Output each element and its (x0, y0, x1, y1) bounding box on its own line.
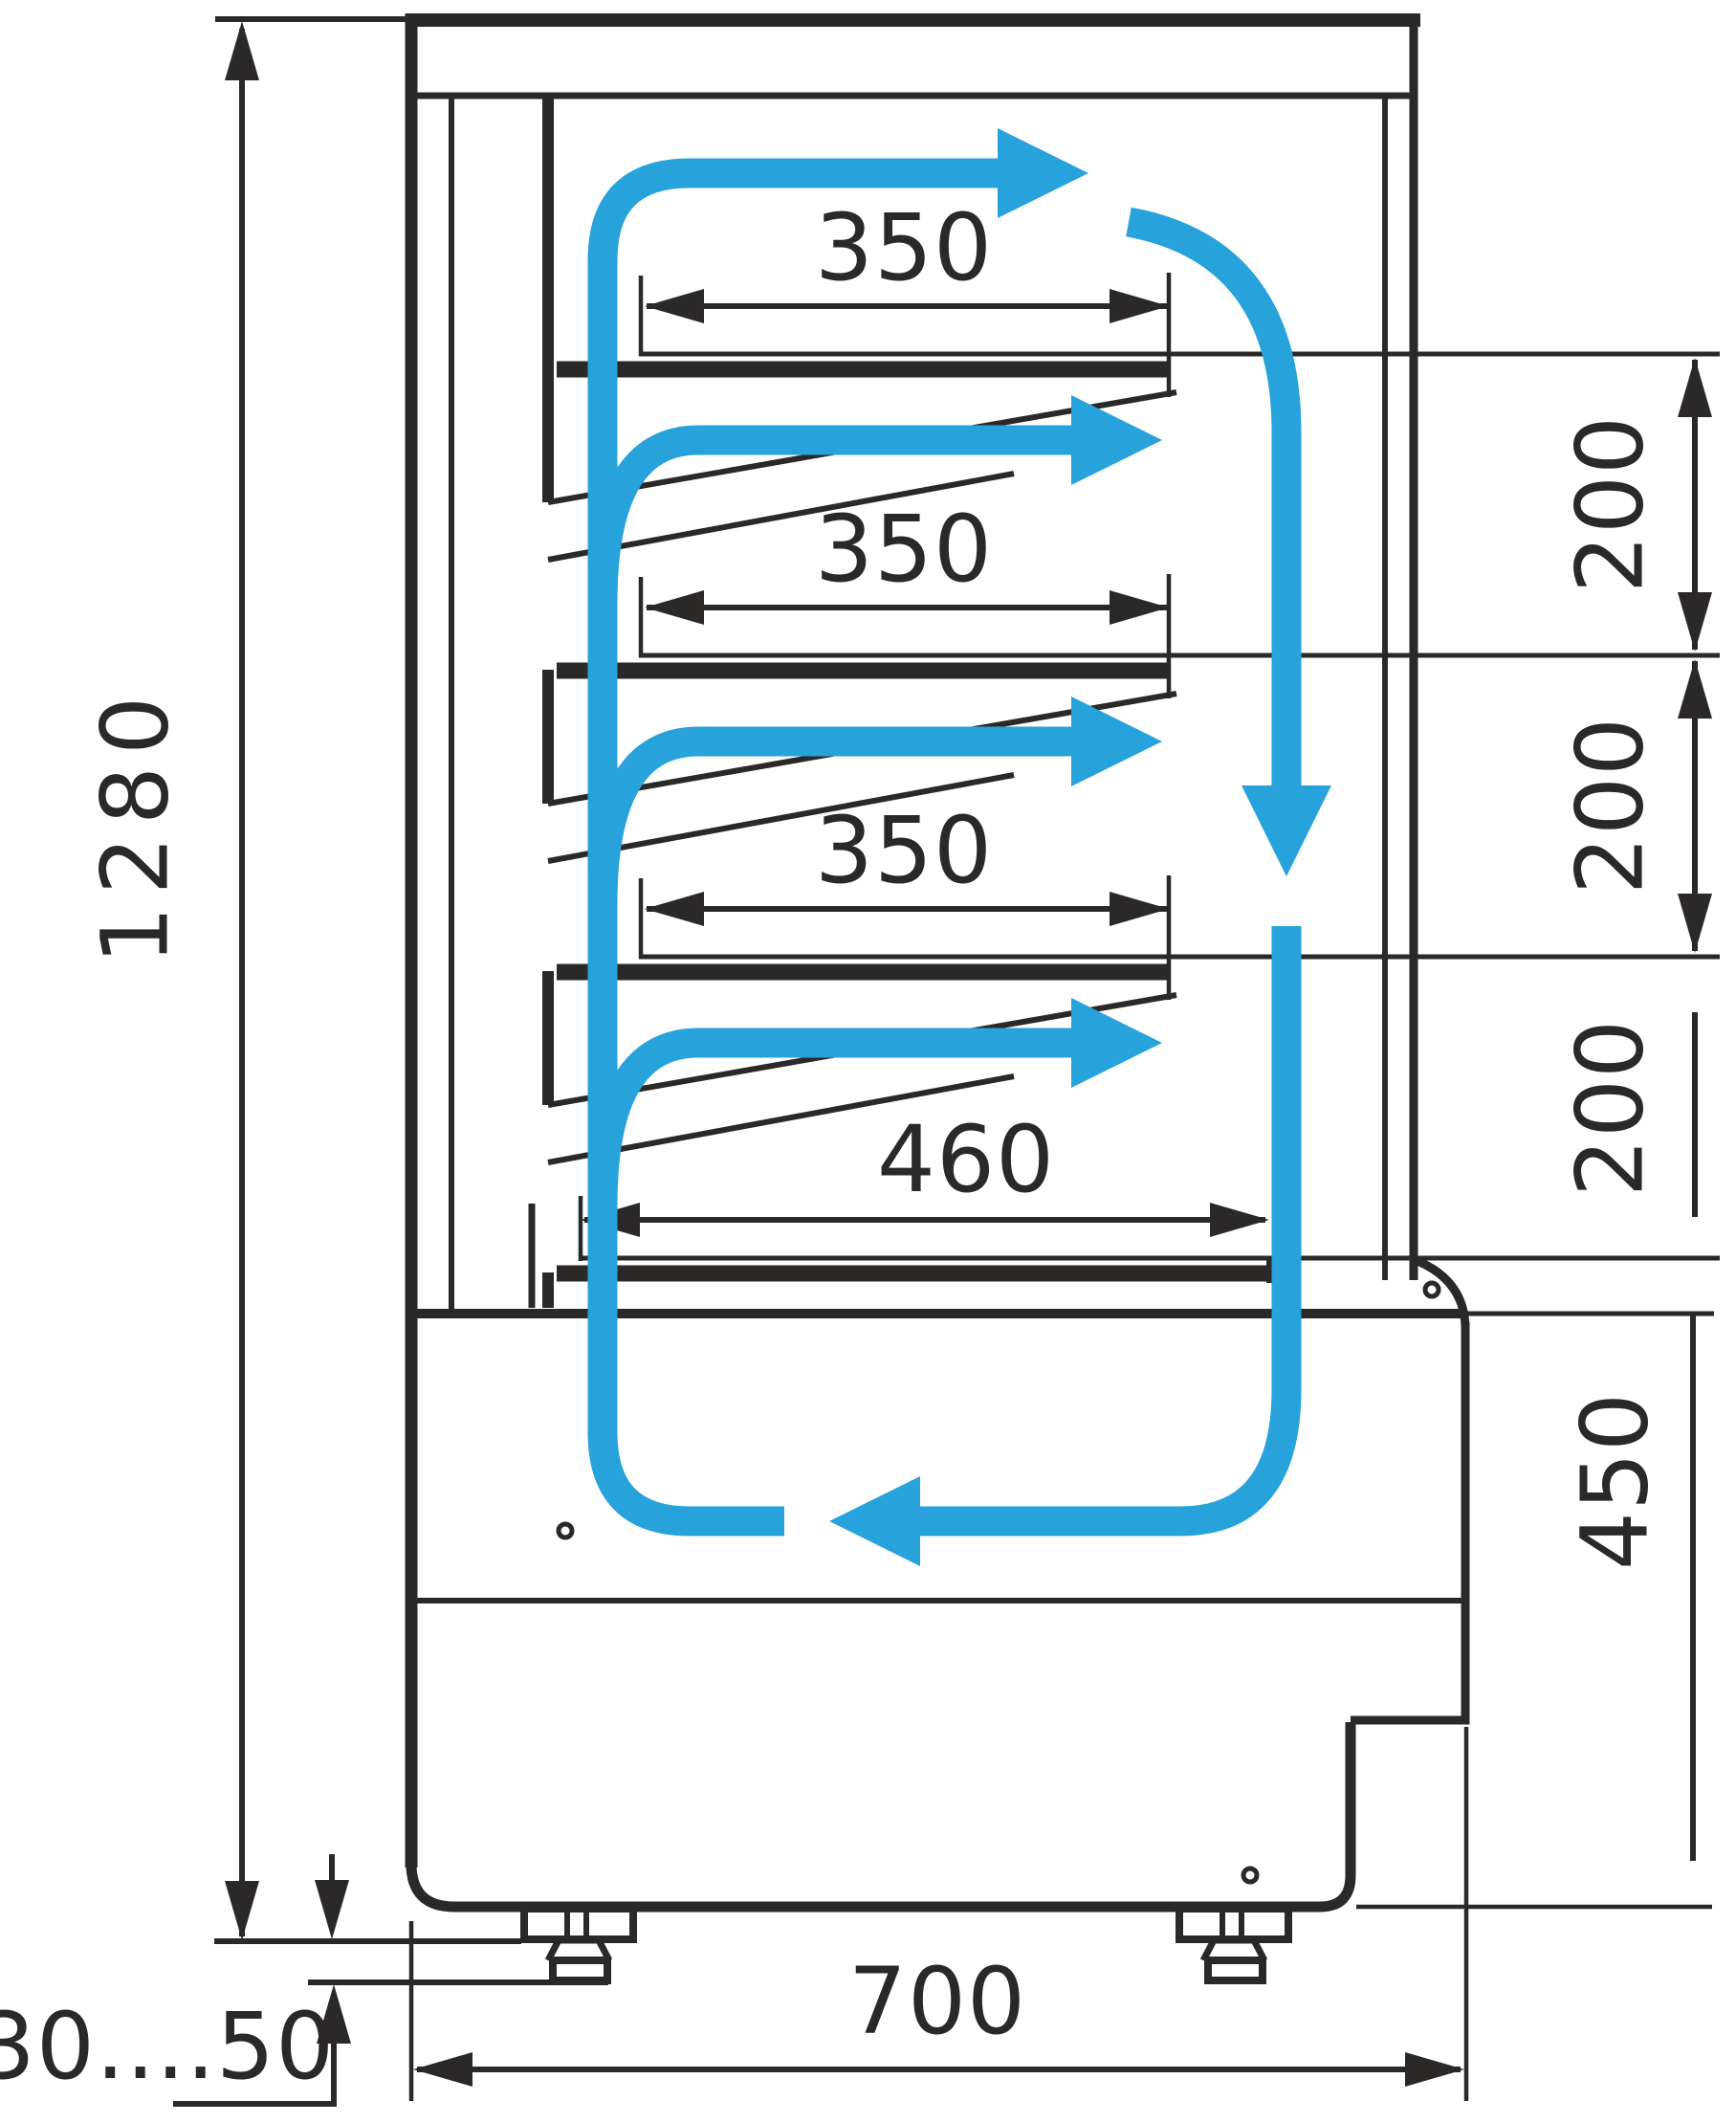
label-shelf-depth-middle: 350 (815, 496, 993, 603)
label-base-shelf-depth: 460 (877, 1106, 1055, 1213)
screw-icon (559, 1524, 572, 1537)
label-shelf-depth-lower: 350 (815, 797, 993, 904)
label-overall-depth: 700 (848, 1948, 1026, 2055)
drawing-sheet: 1280 350 350 350 460 200 200 200 450 700… (0, 0, 1736, 2123)
label-gap-1: 200 (1556, 415, 1663, 593)
body-right-step (1351, 1322, 1465, 1720)
screw-icon (1243, 1869, 1257, 1882)
airflow-arrow-shelf2-icon (1071, 697, 1162, 786)
body-bottom (411, 1722, 1351, 1907)
leg-left (524, 1909, 633, 1980)
airflow-arrow-shelf1-icon (1071, 395, 1162, 485)
dim-shelf-spacings (1678, 358, 1712, 1217)
leg-right (1179, 1909, 1288, 1980)
airflow-arrow-down-icon (1242, 785, 1331, 876)
display-case-diagram: 1280 350 350 350 460 200 200 200 450 700… (0, 0, 1736, 2123)
airflow-arrow-top-icon (998, 128, 1088, 218)
airflow-arrow-return-icon (829, 1476, 920, 1566)
label-shelf-depth-top: 350 (815, 194, 993, 301)
label-base-height: 450 (1561, 1392, 1668, 1570)
label-gap-3: 200 (1556, 1019, 1663, 1197)
airflow-arrow-shelf3-icon (1071, 998, 1162, 1088)
airflow-riser-bottom-bend (603, 1432, 784, 1521)
dimension-labels: 1280 350 350 350 460 200 200 200 450 700… (0, 194, 1668, 2100)
label-gap-2: 200 (1556, 717, 1663, 895)
dimension-annotations (173, 19, 1712, 2104)
screw-icon (1425, 1283, 1439, 1296)
dim-total-height (214, 19, 521, 1941)
label-leg-adjustment: 30....50 (0, 1993, 335, 2100)
label-total-height: 1280 (81, 685, 188, 964)
